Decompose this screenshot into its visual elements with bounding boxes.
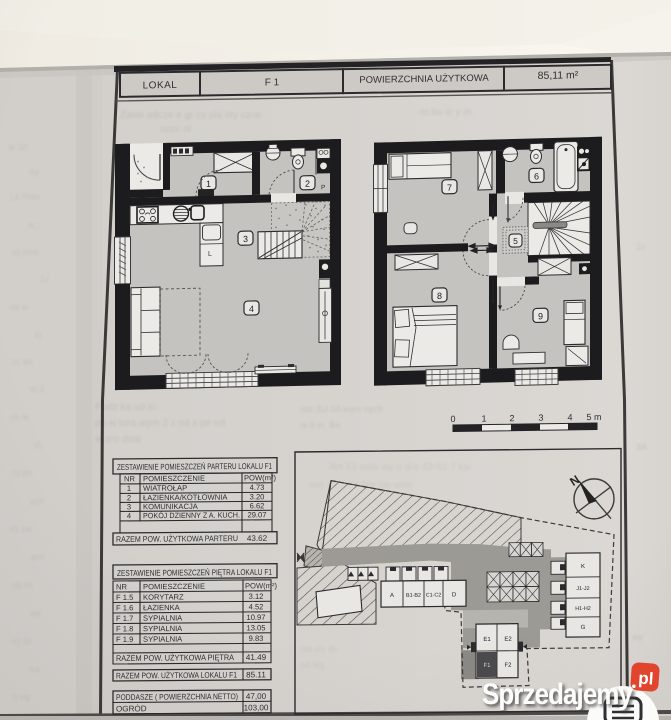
svg-text:pl: pl [638, 669, 654, 689]
svg-text:Sprzedajemy: Sprzedajemy [482, 678, 633, 711]
